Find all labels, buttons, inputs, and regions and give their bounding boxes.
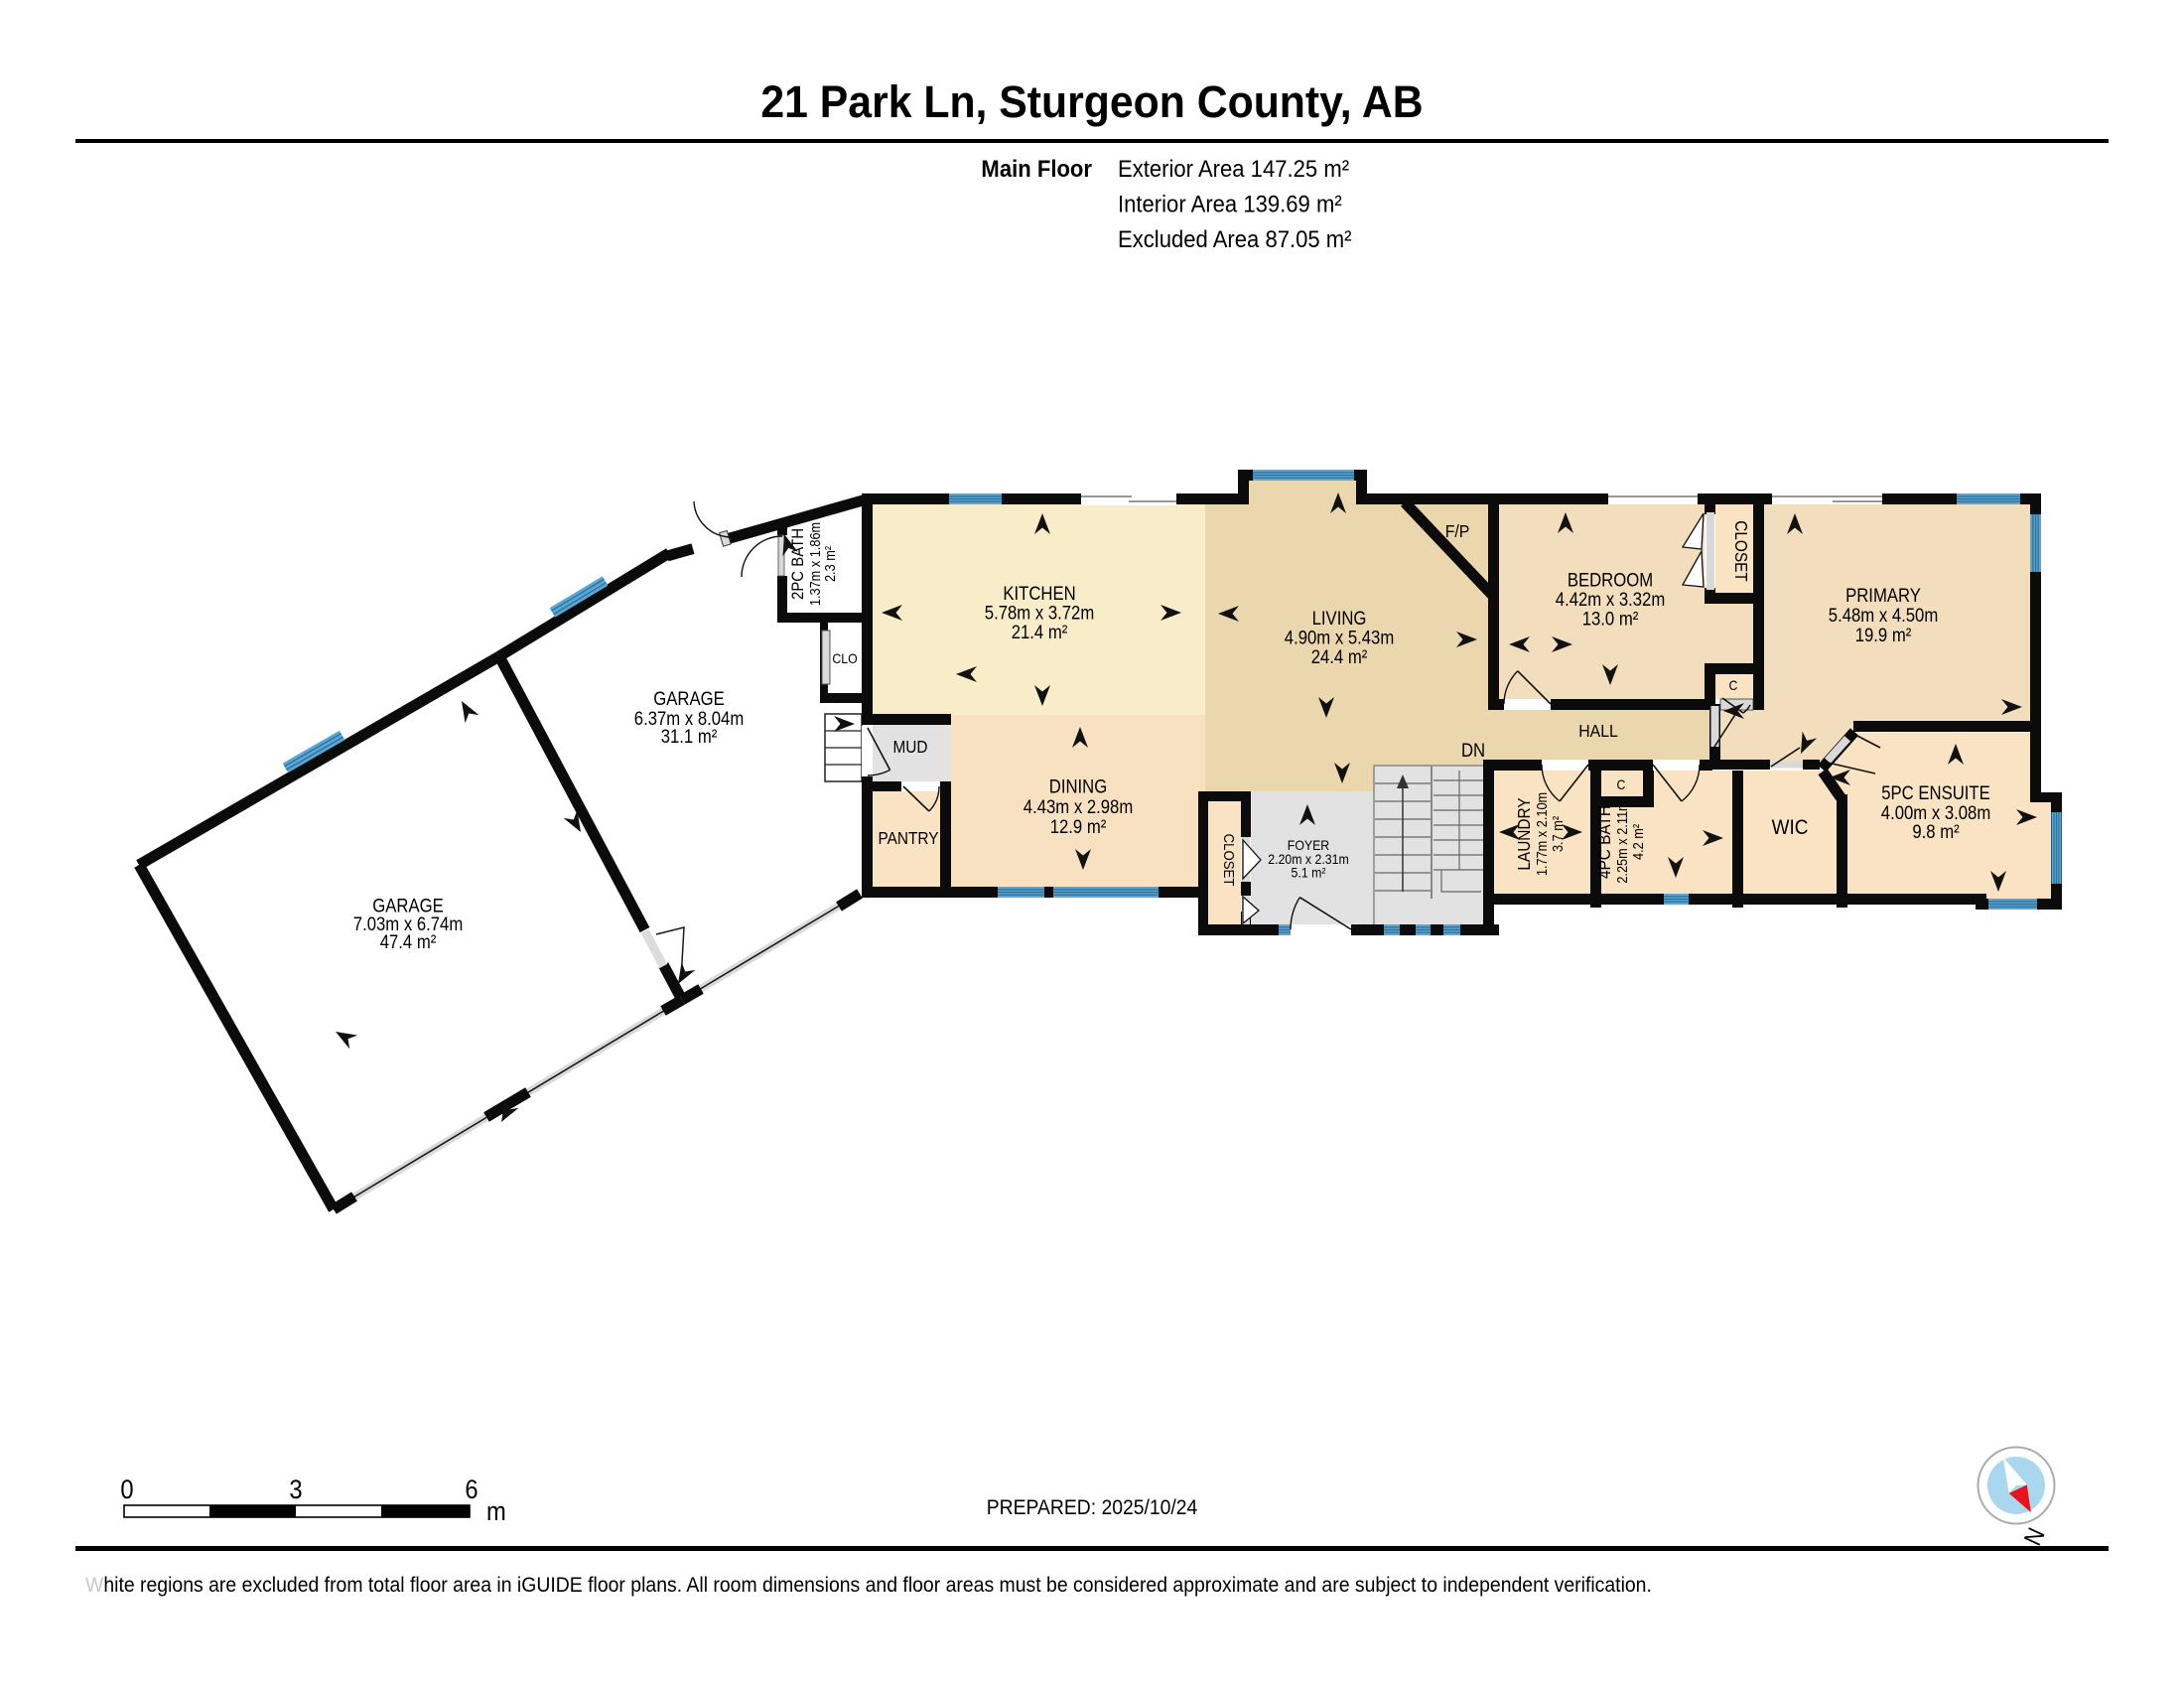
svg-text:1.37m x 1.86m: 1.37m x 1.86m: [807, 522, 823, 606]
svg-text:MUD: MUD: [892, 738, 927, 757]
svg-text:C: C: [1729, 677, 1738, 693]
svg-text:3.7 m²: 3.7 m²: [1550, 816, 1566, 853]
svg-text:Exterior Area 147.25 m²: Exterior Area 147.25 m²: [1118, 155, 1349, 182]
svg-text:21 Park Ln, Sturgeon County, A: 21 Park Ln, Sturgeon County, AB: [760, 77, 1423, 127]
svg-text:Excluded Area 87.05 m²: Excluded Area 87.05 m²: [1118, 225, 1352, 252]
svg-text:4PC BATH: 4PC BATH: [1595, 805, 1614, 879]
svg-text:PANTRY: PANTRY: [879, 829, 939, 848]
svg-text:4.42m x 3.32m: 4.42m x 3.32m: [1556, 589, 1665, 610]
svg-text:6: 6: [465, 1476, 478, 1505]
svg-text:F/P: F/P: [1445, 521, 1470, 541]
svg-text:GARAGE: GARAGE: [653, 688, 725, 709]
svg-text:47.4 m²: 47.4 m²: [380, 931, 437, 952]
svg-text:PREPARED: 2025/10/24: PREPARED: 2025/10/24: [987, 1495, 1197, 1519]
svg-text:CLOSET: CLOSET: [1731, 520, 1750, 582]
svg-text:BEDROOM: BEDROOM: [1568, 570, 1653, 591]
svg-text:4.2 m²: 4.2 m²: [1630, 824, 1646, 861]
svg-text:21.4 m²: 21.4 m²: [1012, 622, 1068, 642]
svg-text:5.1 m²: 5.1 m²: [1292, 865, 1326, 881]
svg-text:PRIMARY: PRIMARY: [1845, 585, 1921, 606]
svg-text:2.3 m²: 2.3 m²: [822, 546, 838, 583]
svg-text:12.9 m²: 12.9 m²: [1050, 816, 1107, 837]
svg-text:9.8 m²: 9.8 m²: [1912, 821, 1959, 842]
svg-text:White regions are excluded fro: White regions are excluded from total fl…: [85, 1574, 1652, 1597]
svg-text:5.48m x 4.50m: 5.48m x 4.50m: [1829, 605, 1938, 626]
svg-text:C: C: [1617, 776, 1626, 792]
svg-text:24.4 m²: 24.4 m²: [1311, 646, 1368, 667]
svg-text:0: 0: [120, 1476, 133, 1505]
svg-text:Interior Area 139.69 m²: Interior Area 139.69 m²: [1118, 191, 1342, 217]
svg-text:DN: DN: [1461, 740, 1485, 761]
svg-text:CLOSET: CLOSET: [1221, 834, 1238, 887]
svg-text:4.90m x 5.43m: 4.90m x 5.43m: [1285, 628, 1394, 648]
svg-text:LIVING: LIVING: [1312, 608, 1367, 629]
svg-text:13.0 m²: 13.0 m²: [1582, 609, 1639, 630]
svg-text:4.43m x 2.98m: 4.43m x 2.98m: [1024, 796, 1133, 817]
svg-text:5PC ENSUITE: 5PC ENSUITE: [1881, 782, 1990, 803]
svg-text:1.77m x 2.10m: 1.77m x 2.10m: [1534, 792, 1550, 876]
svg-text:DINING: DINING: [1049, 776, 1107, 797]
svg-text:CLO: CLO: [832, 650, 857, 666]
svg-text:WIC: WIC: [1772, 816, 1809, 839]
svg-text:2PC BATH: 2PC BATH: [789, 528, 807, 600]
svg-text:3: 3: [289, 1476, 302, 1505]
svg-text:Main Floor: Main Floor: [981, 155, 1092, 182]
svg-text:31.1 m²: 31.1 m²: [661, 726, 718, 747]
svg-text:m: m: [486, 1497, 506, 1527]
svg-text:5.78m x 3.72m: 5.78m x 3.72m: [985, 603, 1094, 624]
svg-text:HALL: HALL: [1578, 721, 1618, 741]
svg-text:LAUNDRY: LAUNDRY: [1515, 797, 1534, 870]
svg-text:KITCHEN: KITCHEN: [1003, 583, 1075, 604]
svg-text:19.9 m²: 19.9 m²: [1855, 625, 1912, 645]
svg-text:2.25m x 2.11m: 2.25m x 2.11m: [1614, 800, 1630, 883]
